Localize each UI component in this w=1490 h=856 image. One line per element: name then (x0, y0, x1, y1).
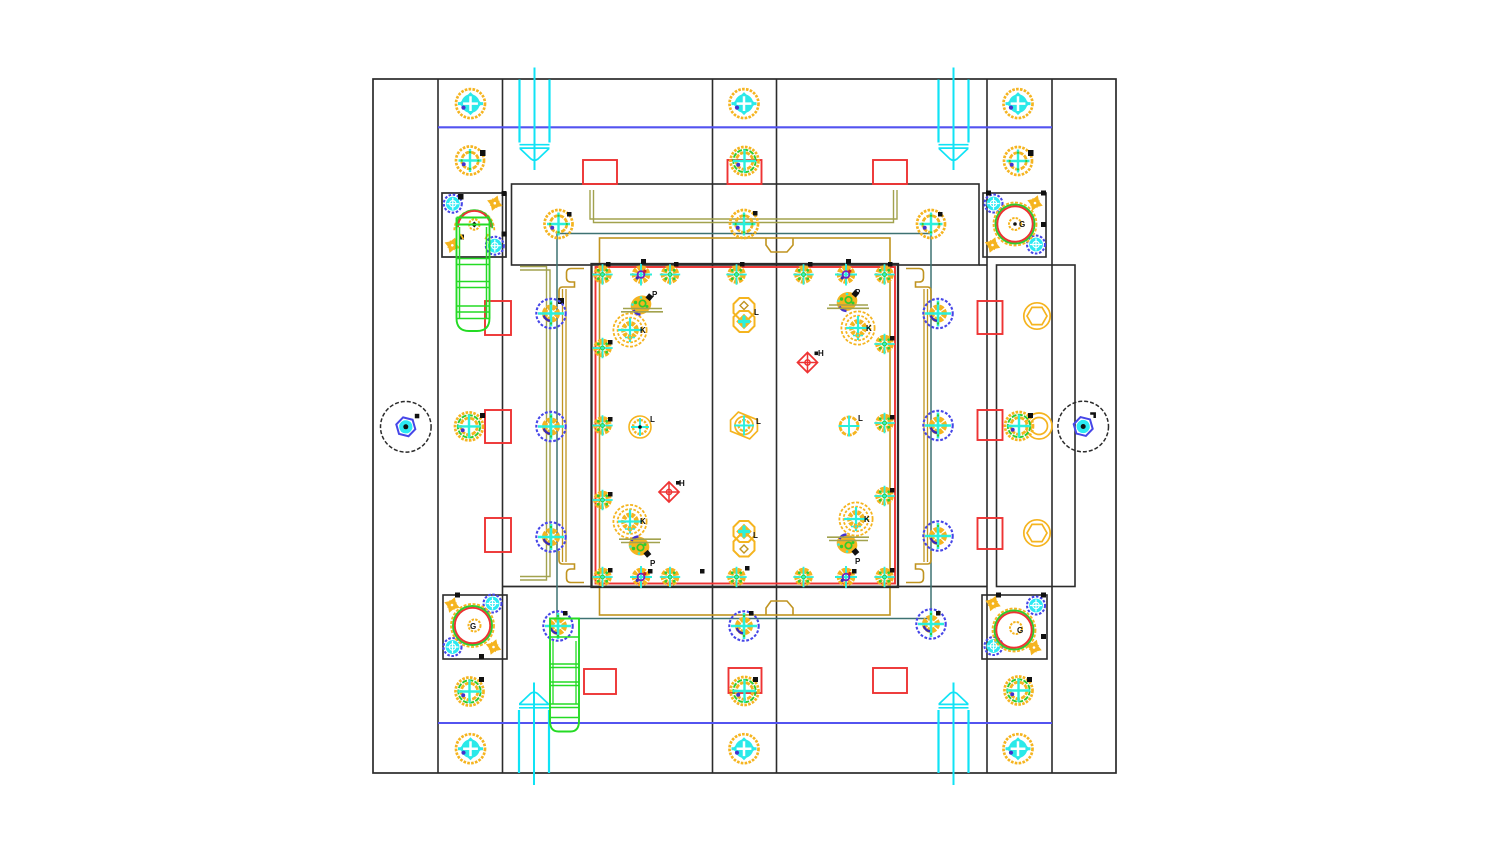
svg-text:G: G (1017, 626, 1023, 635)
svg-text:H: H (818, 349, 824, 358)
svg-text:L: L (753, 531, 758, 540)
svg-text:K: K (640, 326, 646, 335)
svg-text:P: P (650, 559, 656, 568)
svg-text:K: K (640, 517, 646, 526)
svg-text:K: K (866, 324, 872, 333)
svg-text:L: L (858, 414, 863, 423)
svg-text:G: G (470, 622, 476, 631)
svg-text:P: P (855, 557, 861, 566)
svg-text:L: L (754, 308, 759, 317)
svg-text:P: P (652, 290, 658, 299)
svg-text:G: G (1019, 220, 1025, 229)
svg-text:K: K (864, 515, 870, 524)
svg-text:P: P (855, 288, 861, 297)
svg-text:H: H (679, 479, 685, 488)
svg-text:L: L (756, 417, 761, 426)
svg-text:L: L (650, 415, 655, 424)
